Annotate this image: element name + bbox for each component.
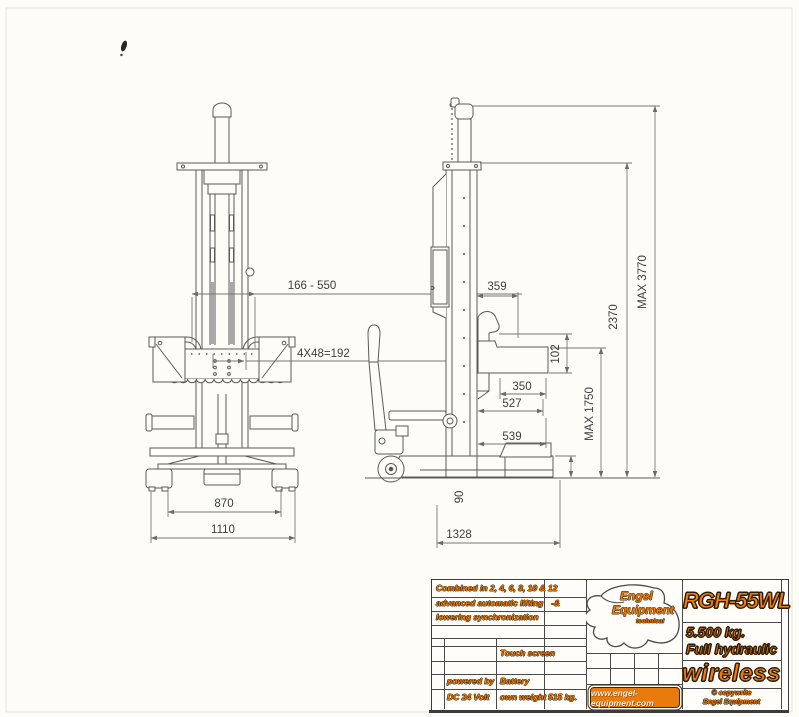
brand-name-1: Engel — [620, 589, 653, 603]
dim-hole-pattern: 4X48=192 — [297, 348, 350, 360]
spec-weight-label: own weight — [500, 692, 546, 702]
front-view — [146, 103, 298, 491]
product-section: RGH-55WL 5.500 kg. Full hydraulic wirele… — [682, 580, 781, 709]
side-view — [365, 98, 660, 482]
note-line1: Combined in 2, 4, 6, 8, 10 & 12 — [436, 582, 557, 595]
dim-350: 350 — [512, 381, 531, 393]
dim-527: 527 — [502, 398, 521, 410]
product-wireless: wireless — [682, 660, 781, 688]
dim-max-1750: MAX 1750 — [584, 387, 596, 441]
product-capacity: 5.500 kg. — [686, 624, 745, 640]
copyright-line1: © copywrite — [682, 690, 781, 697]
brand-tagline: technical — [636, 618, 664, 625]
dim-outer-base: 1110 — [211, 524, 235, 536]
copyright-line2: Engel Equipment — [682, 699, 781, 706]
dim-inner-base: 870 — [214, 498, 233, 510]
dim-90: 90 — [454, 491, 466, 504]
note-line2: advanced automatic lifting — [436, 597, 543, 610]
website-badge: www.engel-equipment.com — [590, 687, 680, 708]
brand-name-2: Equipment — [612, 603, 674, 617]
spec-powered-by: powered by — [447, 676, 494, 686]
dim-102: 102 — [550, 344, 562, 363]
spec-battery: Battery — [500, 676, 529, 686]
note-suffix: -& — [551, 597, 560, 610]
dim-359: 359 — [487, 281, 506, 293]
spec-voltage: DC 24 Volt — [447, 692, 489, 702]
note-line3: lowering synchronization — [436, 611, 538, 624]
dim-width-range: 166 - 550 — [288, 280, 337, 292]
dim-539: 539 — [502, 431, 521, 443]
product-model: RGH-55WL — [683, 588, 780, 614]
dim-1328: 1328 — [446, 529, 472, 541]
spec-grid: Touch screen powered by Battery DC 24 Vo… — [432, 639, 586, 709]
notes-area: Combined in 2, 4, 6, 8, 10 & 12 advanced… — [432, 580, 586, 639]
spec-weight-value: 515 kg. — [548, 692, 577, 702]
product-feature: Full hydraulic — [686, 641, 777, 657]
dim-2370: 2370 — [608, 304, 620, 330]
scan-speck — [120, 40, 128, 52]
brand-section: Engel Equipment technical www.engel-equi… — [586, 580, 682, 709]
dim-max-3770: MAX 3770 — [637, 255, 649, 309]
title-block: Combined in 2, 4, 6, 8, 10 & 12 advanced… — [431, 579, 789, 711]
title-block-base-line — [429, 710, 789, 713]
drawing-sheet: 166 - 550 4X48=192 870 1110 — [0, 0, 799, 717]
spec-touchscreen: Touch screen — [500, 648, 555, 658]
website-url: www.engel-equipment.com — [591, 688, 679, 708]
